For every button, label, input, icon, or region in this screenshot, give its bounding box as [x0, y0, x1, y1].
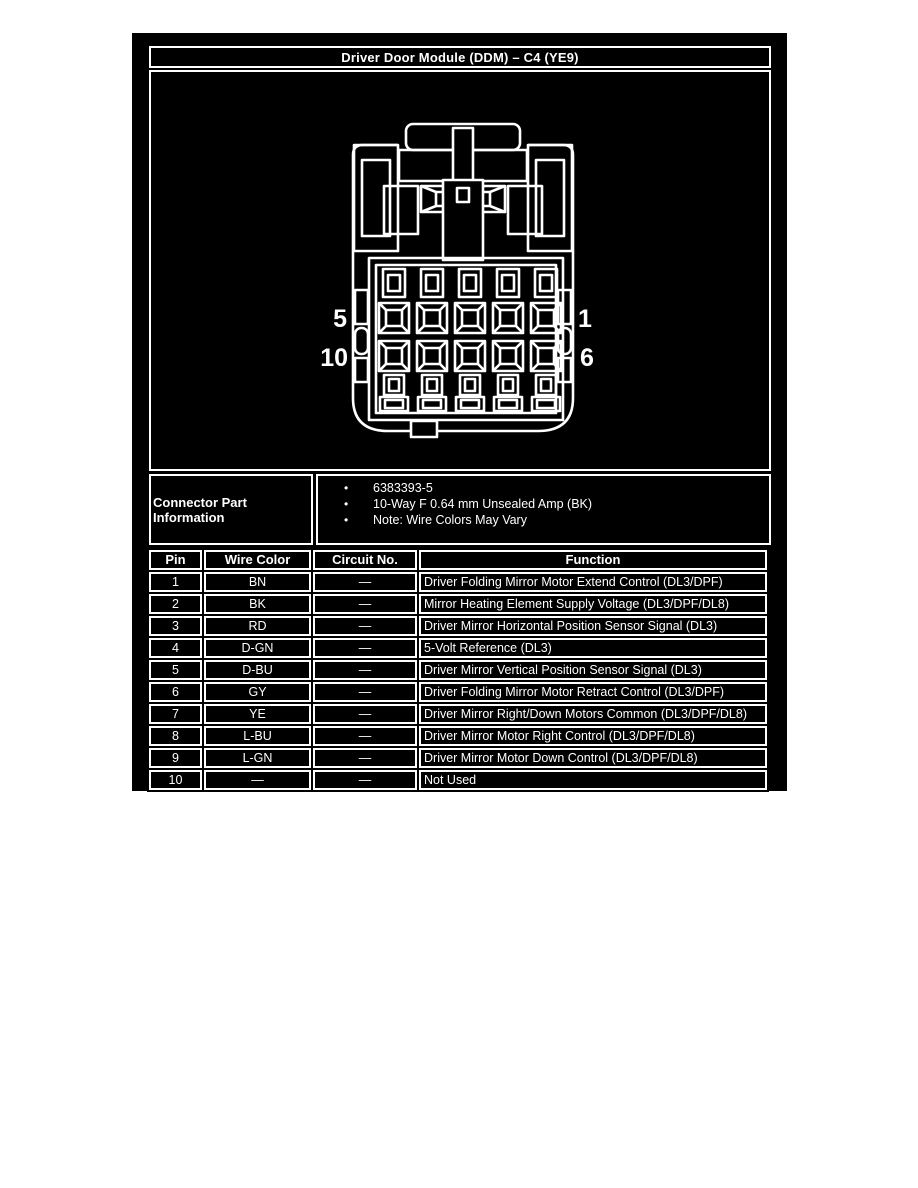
function-cell: Driver Mirror Horizontal Position Sensor… — [419, 616, 767, 636]
part-info-bullet-text: 6383393-5 — [373, 482, 433, 495]
table-row: 6GY—Driver Folding Mirror Motor Retract … — [149, 682, 767, 702]
connector-housing-outline — [353, 124, 573, 437]
wire-color-cell: — — [204, 770, 311, 790]
pin-table: PinWire ColorCircuit No.Function 1BN—Dri… — [147, 548, 769, 792]
function-cell: Mirror Heating Element Supply Voltage (D… — [419, 594, 767, 614]
pin-label-1: 1 — [578, 305, 592, 333]
wire-color-cell: L-GN — [204, 748, 311, 768]
pin-header: Pin — [149, 550, 202, 570]
function-cell: Not Used — [419, 770, 767, 790]
function-cell: Driver Mirror Right/Down Motors Common (… — [419, 704, 767, 724]
page-title: Driver Door Module (DDM) – C4 (YE9) — [149, 46, 771, 68]
pin-label-6: 6 — [580, 344, 594, 372]
connector-diagram-box: 5 10 1 6 — [149, 70, 771, 471]
pin-cell: 9 — [149, 748, 202, 768]
function-header: Function — [419, 550, 767, 570]
table-row: 1BN—Driver Folding Mirror Motor Extend C… — [149, 572, 767, 592]
circuit-no-cell: — — [313, 616, 417, 636]
table-row: 7YE—Driver Mirror Right/Down Motors Comm… — [149, 704, 767, 724]
connector-part-information-details: •6383393-5•10-Way F 0.64 mm Unsealed Amp… — [316, 474, 771, 545]
circuit-no-cell: — — [313, 748, 417, 768]
pin-label-5: 5 — [333, 305, 347, 333]
pin-cell: 4 — [149, 638, 202, 658]
bullet-icon: • — [344, 482, 373, 495]
wire-color-cell: GY — [204, 682, 311, 702]
part-info-bullet-list: •6383393-5•10-Way F 0.64 mm Unsealed Amp… — [344, 482, 765, 527]
function-cell: Driver Mirror Motor Down Control (DL3/DP… — [419, 748, 767, 768]
pin-cell: 3 — [149, 616, 202, 636]
table-row: 2BK—Mirror Heating Element Supply Voltag… — [149, 594, 767, 614]
pin-cell: 10 — [149, 770, 202, 790]
bullet-icon: • — [344, 498, 373, 511]
part-info-bullet: •10-Way F 0.64 mm Unsealed Amp (BK) — [344, 498, 765, 511]
function-cell: Driver Mirror Vertical Position Sensor S… — [419, 660, 767, 680]
pin-cell: 2 — [149, 594, 202, 614]
wire-color-header: Wire Color — [204, 550, 311, 570]
table-row: 9L-GN—Driver Mirror Motor Down Control (… — [149, 748, 767, 768]
circuit-no-cell: — — [313, 682, 417, 702]
connector-diagram: 5 10 1 6 — [151, 72, 769, 469]
table-row: 10——Not Used — [149, 770, 767, 790]
circuit-no-cell: — — [313, 572, 417, 592]
wire-color-cell: YE — [204, 704, 311, 724]
connector-part-information-label: Connector Part Information — [149, 474, 313, 545]
part-info-bullet: •6383393-5 — [344, 482, 765, 495]
table-row: 8L-BU—Driver Mirror Motor Right Control … — [149, 726, 767, 746]
bullet-icon: • — [344, 514, 373, 527]
part-info-bullet-text: 10-Way F 0.64 mm Unsealed Amp (BK) — [373, 498, 592, 511]
pin-cell: 8 — [149, 726, 202, 746]
wire-color-cell: RD — [204, 616, 311, 636]
connector-info-panel: Driver Door Module (DDM) – C4 (YE9) — [132, 33, 787, 791]
circuit-no-cell: — — [313, 638, 417, 658]
function-cell: Driver Folding Mirror Motor Retract Cont… — [419, 682, 767, 702]
connector-part-information-row: Connector Part Information •6383393-5•10… — [149, 474, 771, 545]
pin-cell: 6 — [149, 682, 202, 702]
table-row: 3RD—Driver Mirror Horizontal Position Se… — [149, 616, 767, 636]
pin-cell: 7 — [149, 704, 202, 724]
circuit-no-cell: — — [313, 594, 417, 614]
circuit-no-cell: — — [313, 770, 417, 790]
table-row: 4D-GN—5-Volt Reference (DL3) — [149, 638, 767, 658]
function-cell: Driver Folding Mirror Motor Extend Contr… — [419, 572, 767, 592]
wire-color-cell: BN — [204, 572, 311, 592]
page: { "title": "Driver Door Module (DDM) – C… — [0, 0, 918, 1188]
table-row: 5D-BU—Driver Mirror Vertical Position Se… — [149, 660, 767, 680]
circuit-no-cell: — — [313, 704, 417, 724]
pin-cell: 5 — [149, 660, 202, 680]
wire-color-cell: L-BU — [204, 726, 311, 746]
circuit-no-cell: — — [313, 660, 417, 680]
part-info-bullet-text: Note: Wire Colors May Vary — [373, 514, 527, 527]
function-cell: Driver Mirror Motor Right Control (DL3/D… — [419, 726, 767, 746]
pin-label-10: 10 — [320, 344, 348, 372]
function-cell: 5-Volt Reference (DL3) — [419, 638, 767, 658]
circuit-no-cell: — — [313, 726, 417, 746]
pin-cell: 1 — [149, 572, 202, 592]
wire-color-cell: D-BU — [204, 660, 311, 680]
wire-color-cell: D-GN — [204, 638, 311, 658]
pin-table-header-row: PinWire ColorCircuit No.Function — [149, 550, 767, 570]
part-info-bullet: •Note: Wire Colors May Vary — [344, 514, 765, 527]
circuit-no-header: Circuit No. — [313, 550, 417, 570]
wire-color-cell: BK — [204, 594, 311, 614]
